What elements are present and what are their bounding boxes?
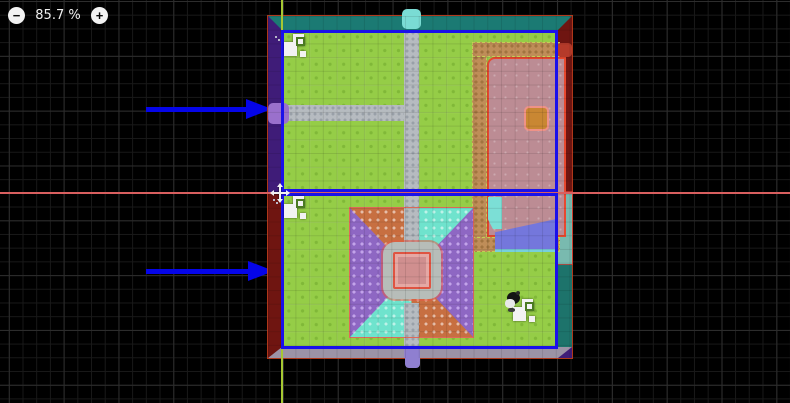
editor-canvas[interactable]: − 85.7 % + <box>0 0 790 403</box>
zoom-level-label: 85.7 % <box>29 8 87 23</box>
move-crosshair-icon[interactable] <box>270 183 290 203</box>
zoom-out-button[interactable]: − <box>8 7 25 24</box>
chunk-marker-square-small <box>300 213 306 219</box>
chunk-marker-square-green <box>293 196 304 208</box>
map-corner-bottom-right <box>558 347 572 358</box>
map-corner-bottom-left <box>268 347 282 358</box>
selection-rect-upper-region[interactable] <box>281 30 558 192</box>
sprite-body <box>505 299 515 308</box>
chunk-marker-icon[interactable] <box>284 34 306 58</box>
arrow-shaft <box>146 269 250 274</box>
animal-sprite[interactable] <box>504 291 522 313</box>
zoom-in-button[interactable]: + <box>91 7 108 24</box>
arrow-shaft <box>146 107 248 112</box>
map-corner-top-right <box>558 16 572 30</box>
chunk-marker-square-green <box>522 299 533 311</box>
red-gate-blob <box>557 43 572 57</box>
sprite-foot <box>508 308 515 312</box>
map-corner-top-left <box>268 16 282 30</box>
border-strip-left-red <box>268 193 282 347</box>
zoom-controls: − 85.7 % + <box>8 7 108 24</box>
selection-rect-lower-region[interactable] <box>281 193 558 349</box>
cyan-gate-blob <box>402 9 421 29</box>
sprite-ear <box>516 291 520 295</box>
purple-gate-blob-bottom <box>405 349 420 368</box>
chunk-marker-square-green <box>293 34 304 46</box>
chunk-marker-square-small <box>300 51 306 57</box>
chunk-marker-square-small <box>529 316 535 322</box>
